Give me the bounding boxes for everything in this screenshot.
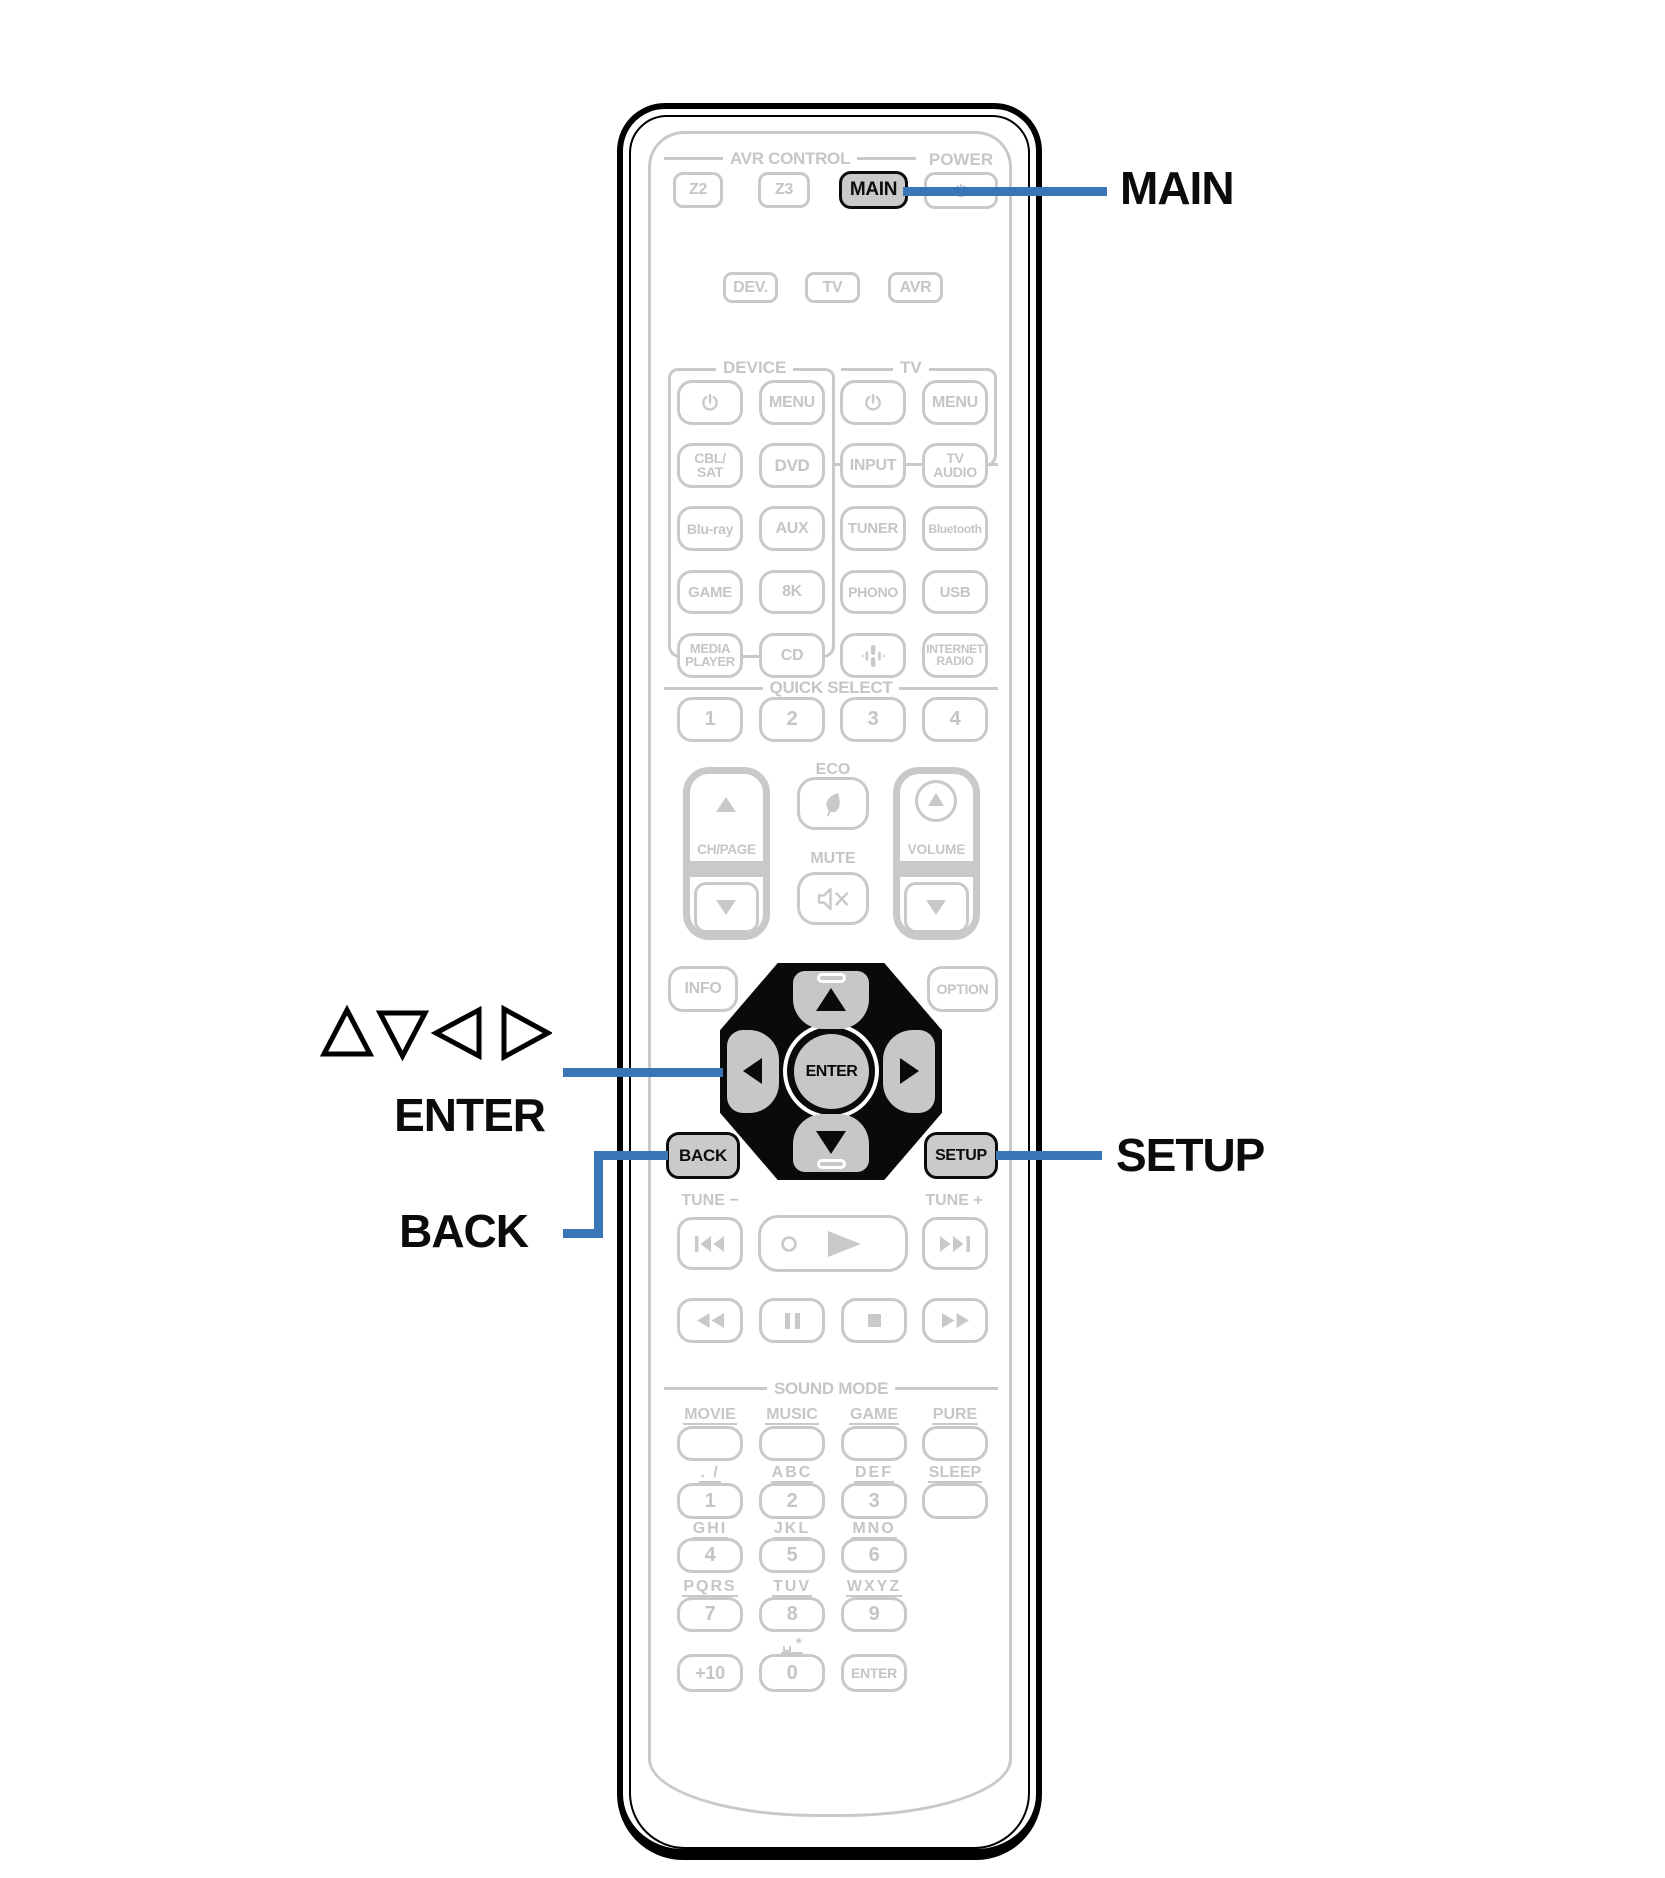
fast-forward-button[interactable] <box>922 1298 988 1343</box>
back-callout-label: BACK <box>338 1204 528 1258</box>
device-group-label: DEVICE <box>716 358 793 378</box>
setup-button[interactable]: SETUP <box>924 1132 998 1179</box>
game-label: GAME <box>841 1406 907 1424</box>
back-button[interactable]: BACK <box>666 1132 740 1179</box>
tv-power-button[interactable] <box>840 380 906 425</box>
dev-mode-button[interactable]: DEV. <box>723 272 778 303</box>
sound-mode-label: SOUND MODE <box>774 1379 888 1399</box>
header-dash <box>899 687 998 690</box>
tv-audio-button[interactable]: TVAUDIO <box>922 443 988 488</box>
avr-mode-button[interactable]: AVR <box>888 272 943 303</box>
zone3-button[interactable]: Z3 <box>758 172 810 208</box>
connector-tick <box>988 463 998 466</box>
jkl-label: JKL <box>759 1520 825 1538</box>
key-1[interactable]: 1 <box>677 1483 743 1519</box>
blu-ray-button[interactable]: Blu-ray <box>677 506 743 551</box>
cursor-arrows-callout <box>320 1003 552 1061</box>
channel-page-label: CH/PAGE <box>686 842 767 857</box>
enter-callout-line <box>563 1068 723 1077</box>
quick-select-2-button[interactable]: 2 <box>759 697 825 742</box>
key-8[interactable]: 8 <box>759 1597 825 1632</box>
channel-down-icon <box>716 900 736 915</box>
down-triangle-icon <box>380 1013 425 1056</box>
movie-button[interactable] <box>677 1426 743 1461</box>
power-label: POWER <box>922 150 1000 170</box>
key-0[interactable]: 0 <box>759 1654 825 1692</box>
media-player-button[interactable]: MEDIAPLAYER <box>677 633 743 678</box>
def-label: DEF <box>841 1464 907 1482</box>
quick-select-1-button[interactable]: 1 <box>677 697 743 742</box>
main-callout-line <box>903 187 1107 196</box>
volume-down-icon <box>926 900 946 915</box>
fast-forward-icon <box>942 1313 969 1328</box>
option-button[interactable]: OPTION <box>927 966 998 1012</box>
key-7[interactable]: 7 <box>677 1597 743 1632</box>
cursor-up-indent <box>817 973 846 983</box>
key-3[interactable]: 3 <box>841 1483 907 1519</box>
skip-back-icon <box>695 1236 725 1252</box>
ghi-label: GHI <box>677 1520 743 1538</box>
equalizer-source-button[interactable] <box>840 633 906 678</box>
key-5[interactable]: 5 <box>759 1538 825 1573</box>
cursor-down-indent <box>817 1159 846 1169</box>
volume-rocker-band <box>900 861 973 877</box>
equalizer-icon <box>858 641 888 671</box>
avr-control-label: AVR CONTROL <box>730 149 850 169</box>
bluetooth-button[interactable]: Bluetooth <box>922 506 988 551</box>
key-2[interactable]: 2 <box>759 1483 825 1519</box>
sleep-button[interactable] <box>922 1483 988 1519</box>
stop-button[interactable] <box>841 1298 907 1343</box>
quick-select-label: QUICK SELECT <box>770 678 893 698</box>
input-button[interactable]: INPUT <box>840 443 906 488</box>
key-4[interactable]: 4 <box>677 1538 743 1573</box>
header-dash <box>664 157 723 160</box>
dvd-button[interactable]: DVD <box>759 443 825 488</box>
pause-icon <box>785 1313 800 1329</box>
stop-icon <box>868 1314 881 1327</box>
device-menu-button[interactable]: MENU <box>759 380 825 425</box>
game-sound-button[interactable] <box>841 1426 907 1461</box>
left-triangle-icon <box>436 1010 479 1056</box>
usb-button[interactable]: USB <box>922 570 988 614</box>
device-power-button[interactable] <box>677 380 743 425</box>
music-label: MUSIC <box>759 1406 825 1424</box>
skip-back-button[interactable] <box>677 1217 743 1270</box>
connector-tick <box>906 463 923 466</box>
cursor-down-icon <box>816 1131 846 1154</box>
eco-leaf-icon <box>820 790 846 818</box>
enter-callout-label: ENTER <box>338 1088 545 1142</box>
mno-label: MNO <box>841 1520 907 1538</box>
pure-label: PURE <box>922 1406 988 1424</box>
channel-rocker-band <box>690 861 763 877</box>
cursor-up-icon <box>816 988 846 1011</box>
quick-select-4-button[interactable]: 4 <box>922 697 988 742</box>
abc-label: ABC <box>759 1464 825 1482</box>
pause-button[interactable] <box>759 1298 825 1343</box>
enter-button[interactable]: ENTER <box>794 1034 869 1109</box>
channel-up-icon <box>716 797 736 812</box>
skip-forward-icon <box>940 1236 970 1252</box>
phono-button[interactable]: PHONO <box>840 570 906 614</box>
rewind-icon <box>697 1313 724 1328</box>
wxyz-label: WXYZ <box>841 1578 907 1596</box>
play-button[interactable] <box>758 1215 908 1272</box>
volume-label: VOLUME <box>896 842 977 857</box>
back-callout-line-c <box>594 1151 668 1160</box>
space-asterisk-label: ␣ * <box>759 1634 825 1652</box>
cbl-sat-button[interactable]: CBL/SAT <box>677 443 743 488</box>
setup-callout-line <box>996 1151 1102 1160</box>
tune-minus-label: TUNE − <box>676 1192 744 1210</box>
8k-button[interactable]: 8K <box>759 570 825 614</box>
dot-slash-label: . / <box>677 1464 743 1482</box>
tuv-label: TUV <box>759 1578 825 1596</box>
play-icon <box>761 1218 905 1269</box>
aux-button[interactable]: AUX <box>759 506 825 551</box>
key-6[interactable]: 6 <box>841 1538 907 1573</box>
tv-group-label: TV <box>893 358 929 378</box>
quick-select-header: QUICK SELECT <box>664 680 998 696</box>
tv-mode-button[interactable]: TV <box>805 272 860 303</box>
sound-mode-header: SOUND MODE <box>664 1380 998 1397</box>
cd-button[interactable]: CD <box>759 633 825 678</box>
remote-control-diagram: AVR CONTROL POWER Z2 Z3 MAIN DEV. TV AVR… <box>0 0 1665 1878</box>
main-button[interactable]: MAIN <box>839 171 908 209</box>
back-callout-line-b <box>594 1151 603 1238</box>
tv-menu-button[interactable]: MENU <box>922 380 988 425</box>
tuner-button[interactable]: TUNER <box>840 506 906 551</box>
header-dash <box>664 1387 767 1390</box>
up-triangle-icon <box>324 1010 370 1054</box>
tune-plus-label: TUNE + <box>920 1192 988 1210</box>
header-dash <box>857 157 916 160</box>
pure-button[interactable] <box>922 1426 988 1461</box>
connector-tick <box>743 655 760 658</box>
music-button[interactable] <box>759 1426 825 1461</box>
movie-label: MOVIE <box>677 1406 743 1424</box>
volume-up-icon <box>928 793 944 806</box>
cursor-right-icon <box>900 1058 919 1084</box>
power-icon <box>862 392 884 414</box>
game-button[interactable]: GAME <box>677 570 743 614</box>
main-callout-label: MAIN <box>1120 161 1234 215</box>
header-dash <box>664 687 763 690</box>
avr-control-header: AVR CONTROL <box>664 150 916 167</box>
setup-callout-label: SETUP <box>1116 1128 1264 1182</box>
right-triangle-icon <box>504 1009 548 1057</box>
key-plus10[interactable]: +10 <box>677 1654 743 1692</box>
internet-radio-button[interactable]: INTERNETRADIO <box>922 633 988 678</box>
info-button[interactable]: INFO <box>668 966 738 1012</box>
header-dash <box>895 1387 998 1390</box>
quick-select-3-button[interactable]: 3 <box>840 697 906 742</box>
pqrs-label: PQRS <box>677 1578 743 1596</box>
skip-forward-button[interactable] <box>922 1217 988 1270</box>
mute-icon <box>816 886 850 912</box>
zone2-button[interactable]: Z2 <box>673 172 723 208</box>
eco-button[interactable] <box>797 777 869 830</box>
sleep-label: SLEEP <box>922 1464 988 1482</box>
mute-label: MUTE <box>797 850 869 868</box>
cursor-left-icon <box>743 1058 762 1084</box>
mute-button[interactable] <box>797 872 869 925</box>
rewind-button[interactable] <box>677 1298 743 1343</box>
key-9[interactable]: 9 <box>841 1597 907 1632</box>
power-icon <box>699 392 721 414</box>
key-enter[interactable]: ENTER <box>841 1654 907 1692</box>
